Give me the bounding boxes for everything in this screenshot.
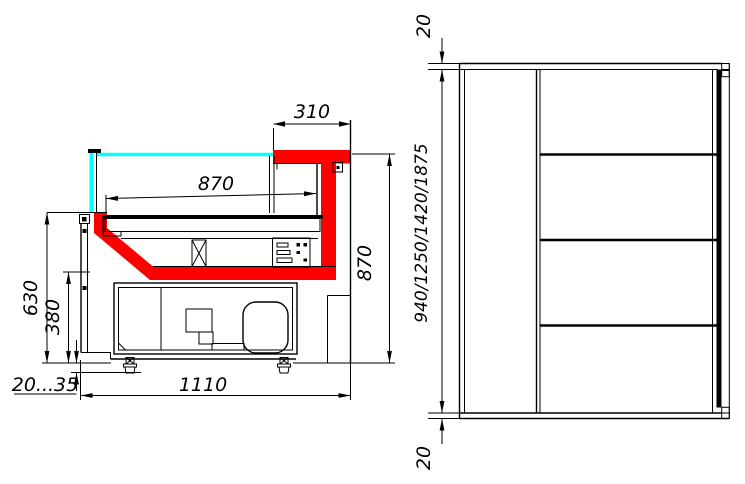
- dim-380-label: 380: [42, 299, 64, 335]
- evaporator-support: [192, 240, 206, 267]
- dim-20-bottom-label: 20: [413, 446, 435, 470]
- glass-top-corner-cap: [88, 149, 101, 153]
- dimension-380: 380: [42, 272, 90, 363]
- technical-drawing-canvas: 310 870 870 630 380: [0, 0, 745, 484]
- rear-gasket-bar: [717, 70, 722, 408]
- drip-tray: [212, 344, 244, 351]
- front-panel: [47, 213, 296, 360]
- dim-870v-label: 870: [354, 245, 376, 281]
- dim-leg-range-label: 20...35: [12, 374, 78, 396]
- dimension-20-top: 20: [413, 14, 460, 70]
- dimension-630: 630: [20, 213, 49, 364]
- display-deck: [103, 215, 323, 239]
- dim-20-top-label: 20: [413, 14, 435, 38]
- dimension-height-variants: 940/1250/1420/1875: [412, 70, 444, 414]
- adjustable-foot-rear: [278, 358, 291, 374]
- bottom-corner-clip: [722, 407, 730, 413]
- control-panel: [273, 238, 311, 267]
- dim-heights-label: 940/1250/1420/1875: [412, 143, 432, 322]
- dim-1110-label: 1110: [179, 374, 227, 396]
- top-corner-clip: [722, 64, 730, 70]
- machine-compartment: [114, 283, 297, 354]
- adjustable-foot-front: [124, 358, 137, 374]
- dim-870h-label: 870: [198, 173, 234, 195]
- dim-630-label: 630: [20, 280, 42, 316]
- dimension-20-bottom: 20: [413, 413, 460, 470]
- compressor: [243, 302, 288, 353]
- dimension-870-vertical: 870: [352, 154, 395, 363]
- cabinet-outline: [460, 64, 730, 419]
- dimension-310: 310: [274, 101, 351, 150]
- dimension-870-horizontal: 870: [106, 173, 316, 213]
- dim-310-label: 310: [294, 101, 330, 123]
- equipment-box: [186, 309, 212, 332]
- dimension-1110: 1110: [81, 360, 351, 400]
- side-section-view: 310 870 870 630 380: [12, 101, 395, 400]
- front-elevation-view: 20 940/1250/1420/1875 20: [412, 14, 729, 470]
